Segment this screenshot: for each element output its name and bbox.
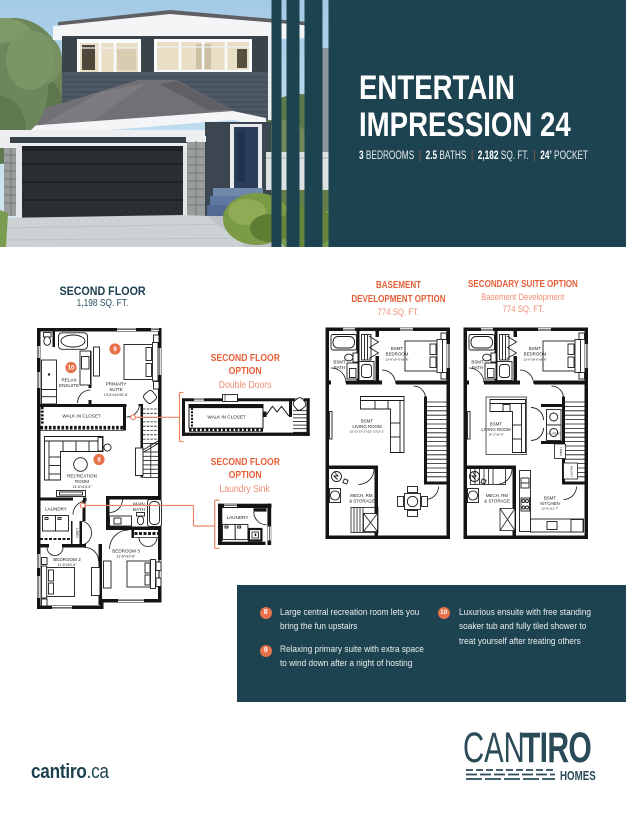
svg-text:BEDROOM 2: BEDROOM 2 bbox=[53, 557, 81, 562]
svg-text:15'-2"/13'-1"x10'-2"/13'-2": 15'-2"/13'-1"x10'-2"/13'-2" bbox=[350, 430, 385, 434]
svg-text:ENSUITE: ENSUITE bbox=[59, 383, 79, 388]
svg-text:11'-6"x10'-6": 11'-6"x10'-6" bbox=[58, 563, 78, 567]
svg-text:MECH. RM: MECH. RM bbox=[486, 493, 509, 498]
svg-text:BSMT: BSMT bbox=[361, 419, 374, 424]
svg-text:LAUNDRY: LAUNDRY bbox=[547, 432, 561, 436]
svg-text:LAUNDRY: LAUNDRY bbox=[227, 515, 249, 520]
svg-text:HOMES: HOMES bbox=[560, 770, 596, 783]
svg-text:11'-6"x10'-6": 11'-6"x10'-6" bbox=[117, 555, 137, 559]
svg-text:LIVING ROOM: LIVING ROOM bbox=[481, 427, 511, 432]
svg-text:PRIMARY: PRIMARY bbox=[106, 382, 127, 387]
svg-text:WALK IN CLOSET: WALK IN CLOSET bbox=[207, 415, 246, 420]
svg-text:KITCHEN: KITCHEN bbox=[540, 501, 559, 506]
svg-text:LINEN: LINEN bbox=[559, 447, 563, 456]
svg-text:& STORAGE: & STORAGE bbox=[349, 499, 375, 504]
svg-text:10: 10 bbox=[68, 366, 75, 372]
svg-text:LAUNDRY: LAUNDRY bbox=[45, 507, 67, 512]
svg-text:CAN: CAN bbox=[463, 723, 525, 771]
svg-text:14'-2"x9'-6": 14'-2"x9'-6" bbox=[488, 433, 504, 437]
svg-text:BSMT: BSMT bbox=[490, 422, 503, 427]
svg-text:LIVING ROOM: LIVING ROOM bbox=[352, 424, 382, 429]
svg-text:BSMT: BSMT bbox=[544, 496, 557, 501]
svg-text:12'-6"x12'-7": 12'-6"x12'-7" bbox=[541, 507, 558, 511]
svg-text:RELAX: RELAX bbox=[61, 378, 76, 383]
svg-text:TIRO: TIRO bbox=[522, 723, 591, 771]
svg-text:MECH. RM.: MECH. RM. bbox=[350, 493, 373, 498]
svg-text:PANTRY: PANTRY bbox=[570, 466, 574, 478]
svg-text:& STORAGE: & STORAGE bbox=[484, 499, 510, 504]
